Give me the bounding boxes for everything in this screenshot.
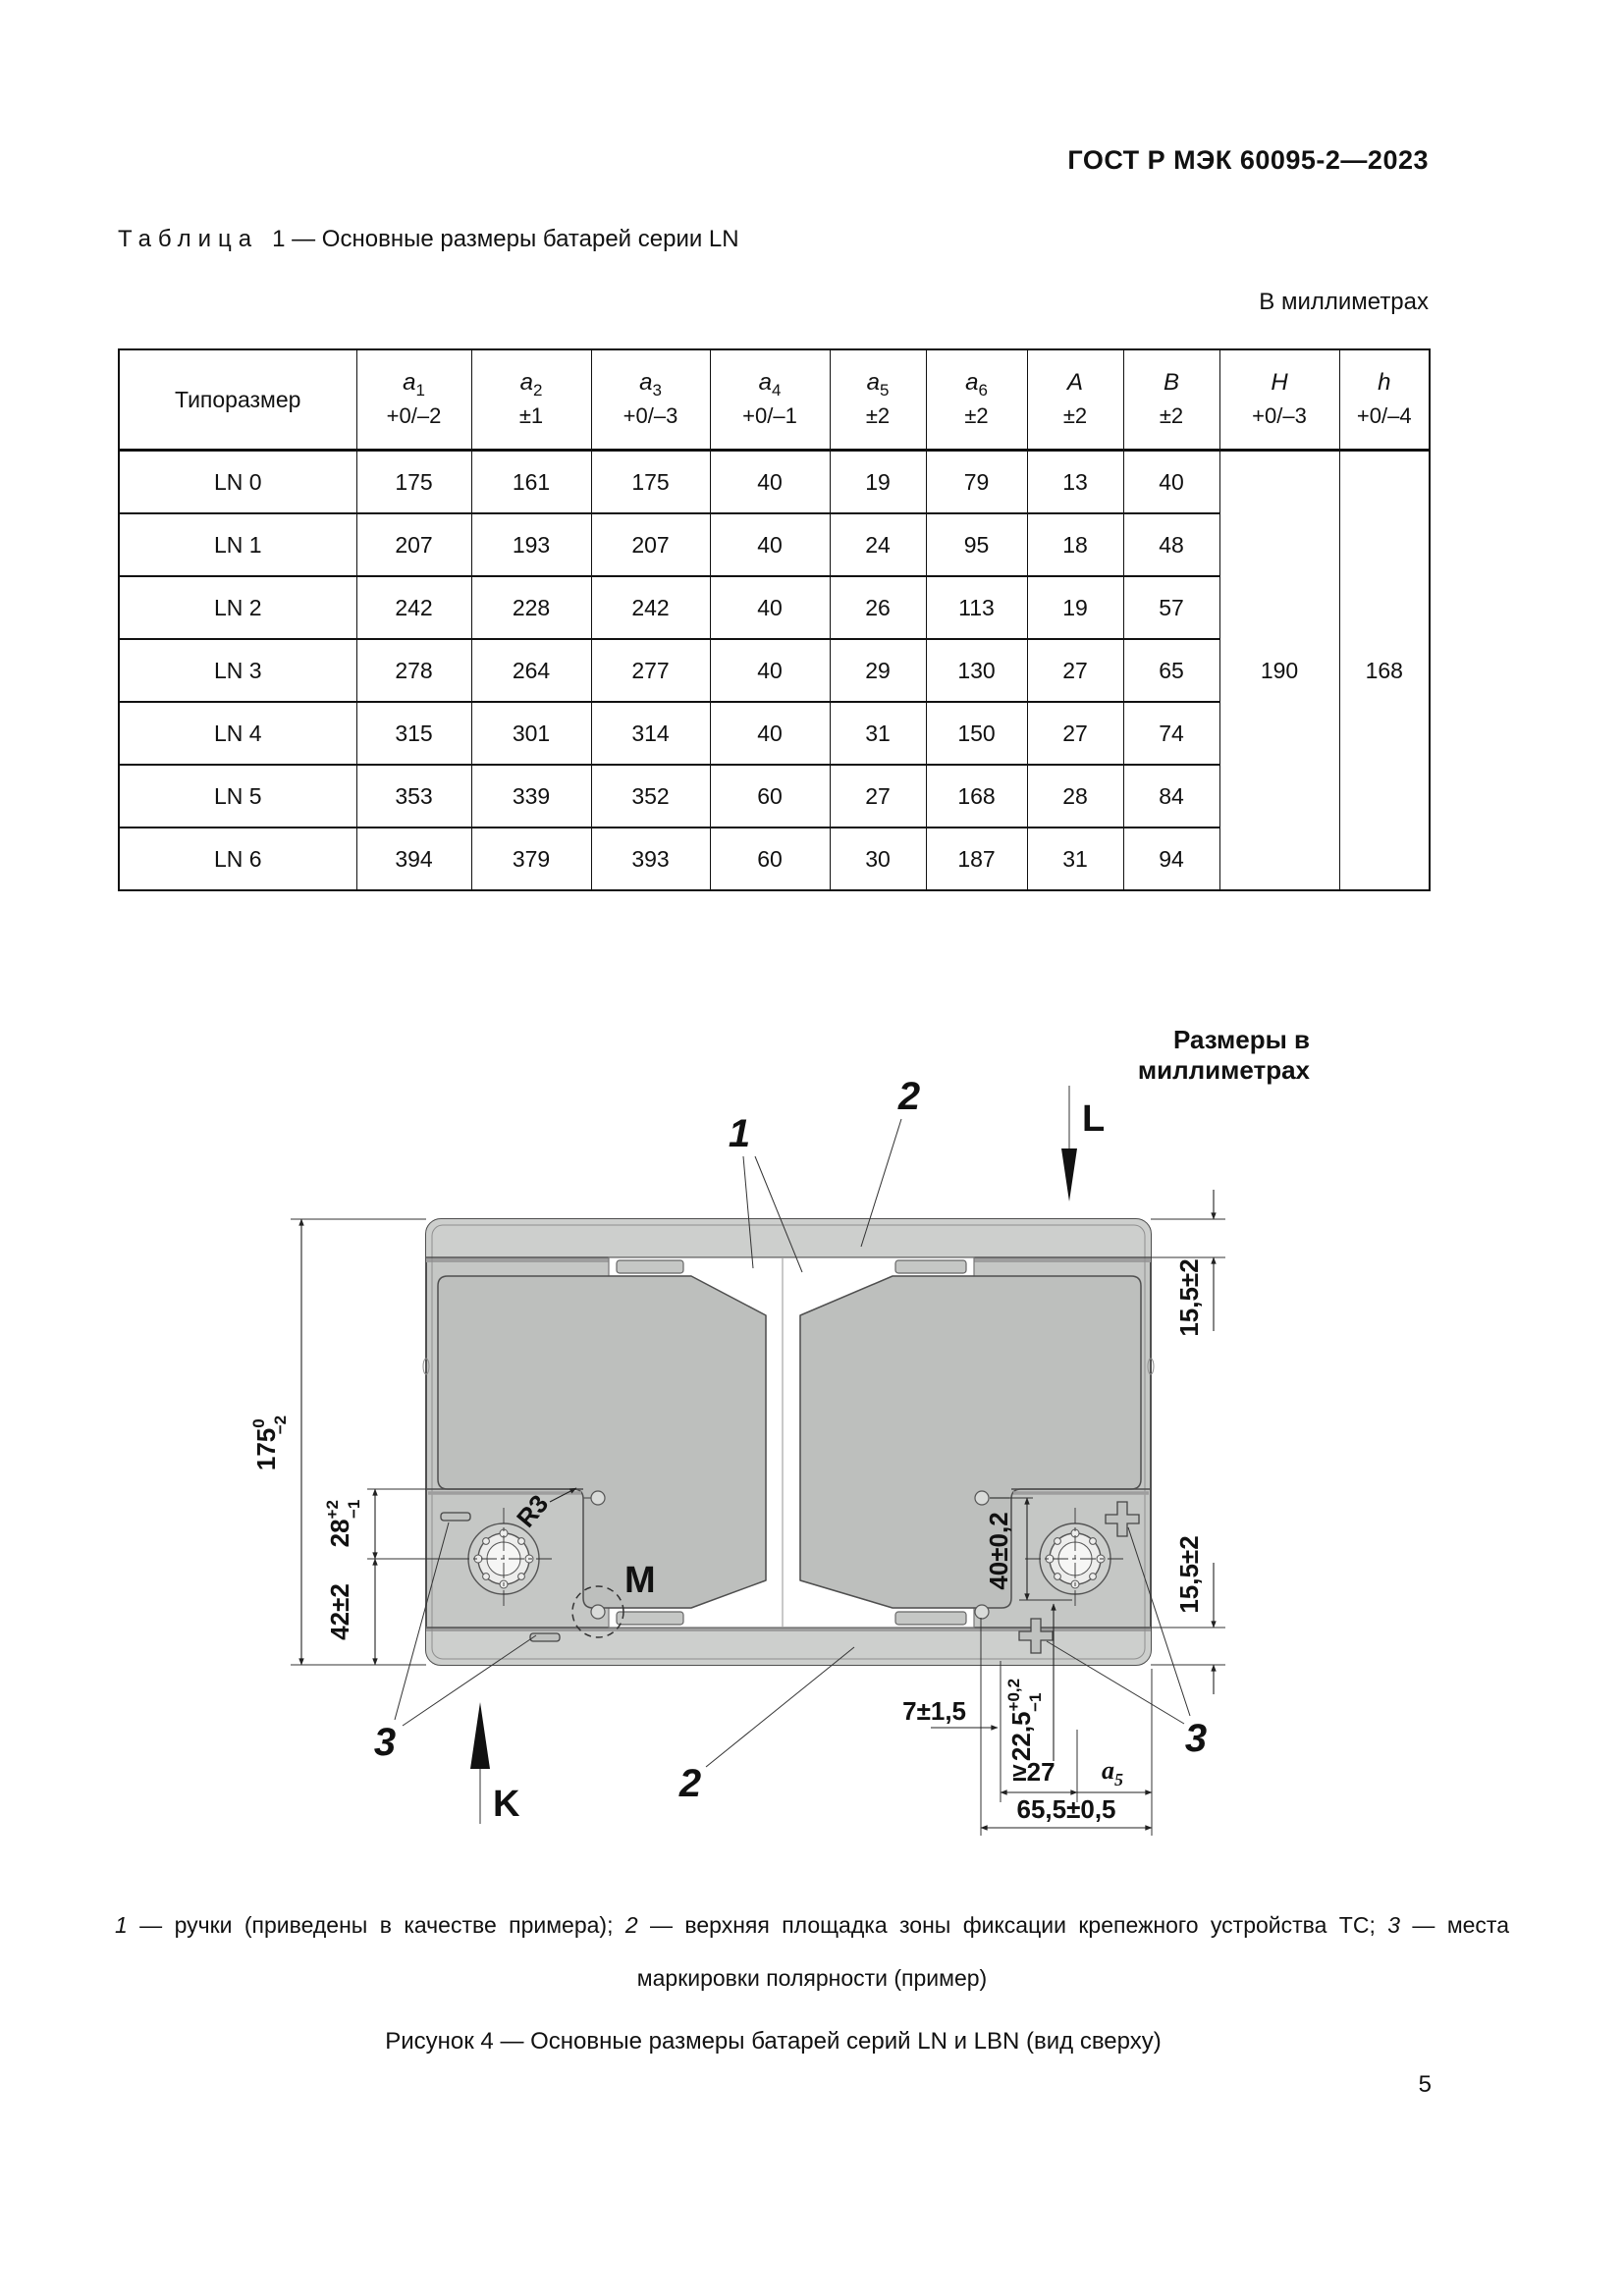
dim-155-bottom: 15,5±2: [1151, 1535, 1225, 1694]
minus-mark: [530, 1633, 560, 1641]
handle-tab: [895, 1260, 966, 1273]
col-header-type: Типоразмер: [119, 349, 356, 451]
svg-text:28+2−1: 28+2−1: [323, 1500, 363, 1548]
svg-text:40±0,2: 40±0,2: [984, 1512, 1013, 1589]
direction-arrow-K: K: [470, 1702, 520, 1825]
col-header-a3: a3+0/–3: [591, 349, 710, 451]
col-header-h: h+0/–4: [1339, 349, 1430, 451]
table-row: LN 01751611754019791340 190168: [119, 451, 1430, 514]
table-header-row: Типоразмер a1+0/–2 a2±1 a3+0/–3 a4+0/–1 …: [119, 349, 1430, 451]
col-header-a4: a4+0/–1: [710, 349, 830, 451]
svg-text:15,5±2: 15,5±2: [1174, 1258, 1204, 1336]
col-header-a1: a1+0/–2: [356, 349, 471, 451]
standard-reference: ГОСТ Р МЭК 60095-2—2023: [1067, 145, 1429, 176]
table-units-note: В миллиметрах: [1259, 289, 1429, 316]
col-header-a6: a6±2: [926, 349, 1027, 451]
handle-tab: [895, 1612, 966, 1625]
minus-mark: [441, 1513, 470, 1521]
col-header-a5: a5±2: [830, 349, 926, 451]
svg-text:7±1,5: 7±1,5: [902, 1696, 966, 1726]
battery-top-view-figure: M R3 1750−2 28+2−1 42±2: [226, 1021, 1394, 1895]
col-header-B: B±2: [1123, 349, 1219, 451]
table-caption-word: Таблица: [118, 226, 258, 252]
svg-text:3: 3: [1185, 1717, 1207, 1760]
page-number: 5: [1419, 2071, 1432, 2099]
svg-text:2: 2: [678, 1762, 701, 1805]
callout-2-bottom: 2: [678, 1647, 854, 1805]
vent-hole: [591, 1605, 605, 1619]
col-header-A: A±2: [1027, 349, 1123, 451]
figure-legend-line1: 1 — ручки (приведены в качестве примера)…: [115, 1910, 1509, 1940]
detail-M-label: M: [624, 1560, 656, 1601]
table-caption-title: — Основные размеры батарей серии LN: [285, 226, 738, 252]
svg-text:1: 1: [729, 1112, 750, 1155]
col-header-H: H+0/–3: [1219, 349, 1339, 451]
svg-text:K: K: [493, 1784, 520, 1825]
svg-text:1750−2: 1750−2: [249, 1415, 290, 1470]
svg-text:L: L: [1082, 1098, 1105, 1140]
table-caption-number: 1: [272, 226, 285, 252]
svg-text:22,5+0,2−1: 22,5+0,2−1: [1004, 1679, 1045, 1761]
figure-legend-line2: маркировки полярности (пример): [115, 1963, 1509, 1993]
merged-h-cell: 168: [1339, 451, 1430, 891]
handle-tab: [617, 1260, 683, 1273]
merged-H-cell: 190: [1219, 451, 1339, 891]
svg-text:2: 2: [897, 1075, 920, 1118]
svg-text:65,5±0,5: 65,5±0,5: [1016, 1794, 1115, 1824]
svg-text:42±2: 42±2: [325, 1583, 354, 1640]
dim-155-top: 15,5±2: [1151, 1190, 1225, 1337]
handle-tab: [617, 1612, 683, 1625]
direction-arrow-L: L: [1061, 1086, 1105, 1201]
dim-42: 42±2: [325, 1559, 375, 1665]
svg-text:≥27: ≥27: [1012, 1757, 1055, 1787]
vent-hole: [975, 1605, 989, 1619]
svg-text:15,5±2: 15,5±2: [1174, 1535, 1204, 1613]
figure-caption: Рисунок 4 — Основные размеры батарей сер…: [118, 2028, 1429, 2056]
svg-text:a5: a5: [1102, 1756, 1123, 1789]
col-header-a2: a2±1: [471, 349, 591, 451]
svg-text:3: 3: [374, 1721, 396, 1764]
vent-hole: [591, 1491, 605, 1505]
dimensions-table: Типоразмер a1+0/–2 a2±1 a3+0/–3 a4+0/–1 …: [118, 348, 1431, 891]
battery-body: M R3: [423, 1219, 1154, 1666]
table-caption: Таблица1 — Основные размеры батарей сери…: [118, 226, 739, 253]
vent-hole: [975, 1491, 989, 1505]
document-page: ГОСТ Р МЭК 60095-2—2023 Таблица1 — Основ…: [0, 0, 1624, 2296]
